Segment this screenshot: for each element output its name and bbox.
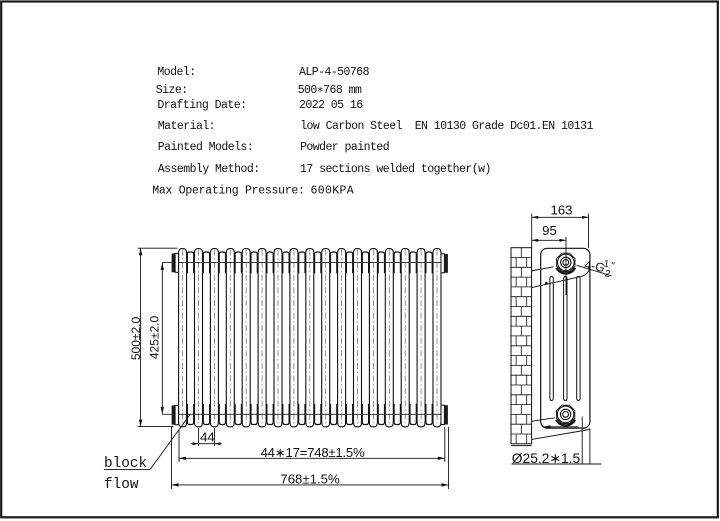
svg-text:Powder painted: Powder painted (300, 141, 389, 154)
svg-text:Max Operating Pressure:: Max Operating Pressure: (152, 184, 304, 197)
svg-text:Painted Models:: Painted Models: (158, 141, 253, 154)
svg-text:flow: flow (104, 477, 139, 493)
svg-text:Model:: Model: (157, 66, 195, 79)
svg-text:Material:: Material: (158, 120, 215, 133)
svg-text:ALP-4-50768: ALP-4-50768 (299, 66, 370, 79)
svg-text:Size:: Size: (156, 84, 188, 97)
svg-text:768±1.5%: 768±1.5% (280, 471, 340, 486)
svg-text:95: 95 (542, 223, 557, 238)
svg-text:44: 44 (200, 430, 215, 445)
svg-text:500∗768 mm: 500∗768 mm (298, 84, 362, 97)
svg-text:163: 163 (550, 203, 572, 218)
svg-text:17 sections welded together(w): 17 sections welded together(w) (300, 163, 491, 176)
svg-text:low Carbon Steel EN 10130 Gra: low Carbon Steel EN 10130 Grade Dc01.EN … (300, 120, 593, 133)
svg-text:2022 05 16: 2022 05 16 (299, 99, 363, 112)
svg-text:″: ″ (610, 260, 616, 272)
svg-text:44∗17=748±1.5%: 44∗17=748±1.5% (261, 445, 365, 460)
svg-text:Drafting Date:: Drafting Date: (157, 99, 246, 112)
svg-text:500±2.0: 500±2.0 (129, 317, 143, 361)
svg-text:Ø25.2∗1.5: Ø25.2∗1.5 (512, 451, 581, 466)
svg-text:600KPA: 600KPA (311, 184, 355, 197)
svg-text:425±2.0: 425±2.0 (147, 316, 161, 360)
svg-text:Assembly Method:: Assembly Method: (158, 163, 260, 176)
